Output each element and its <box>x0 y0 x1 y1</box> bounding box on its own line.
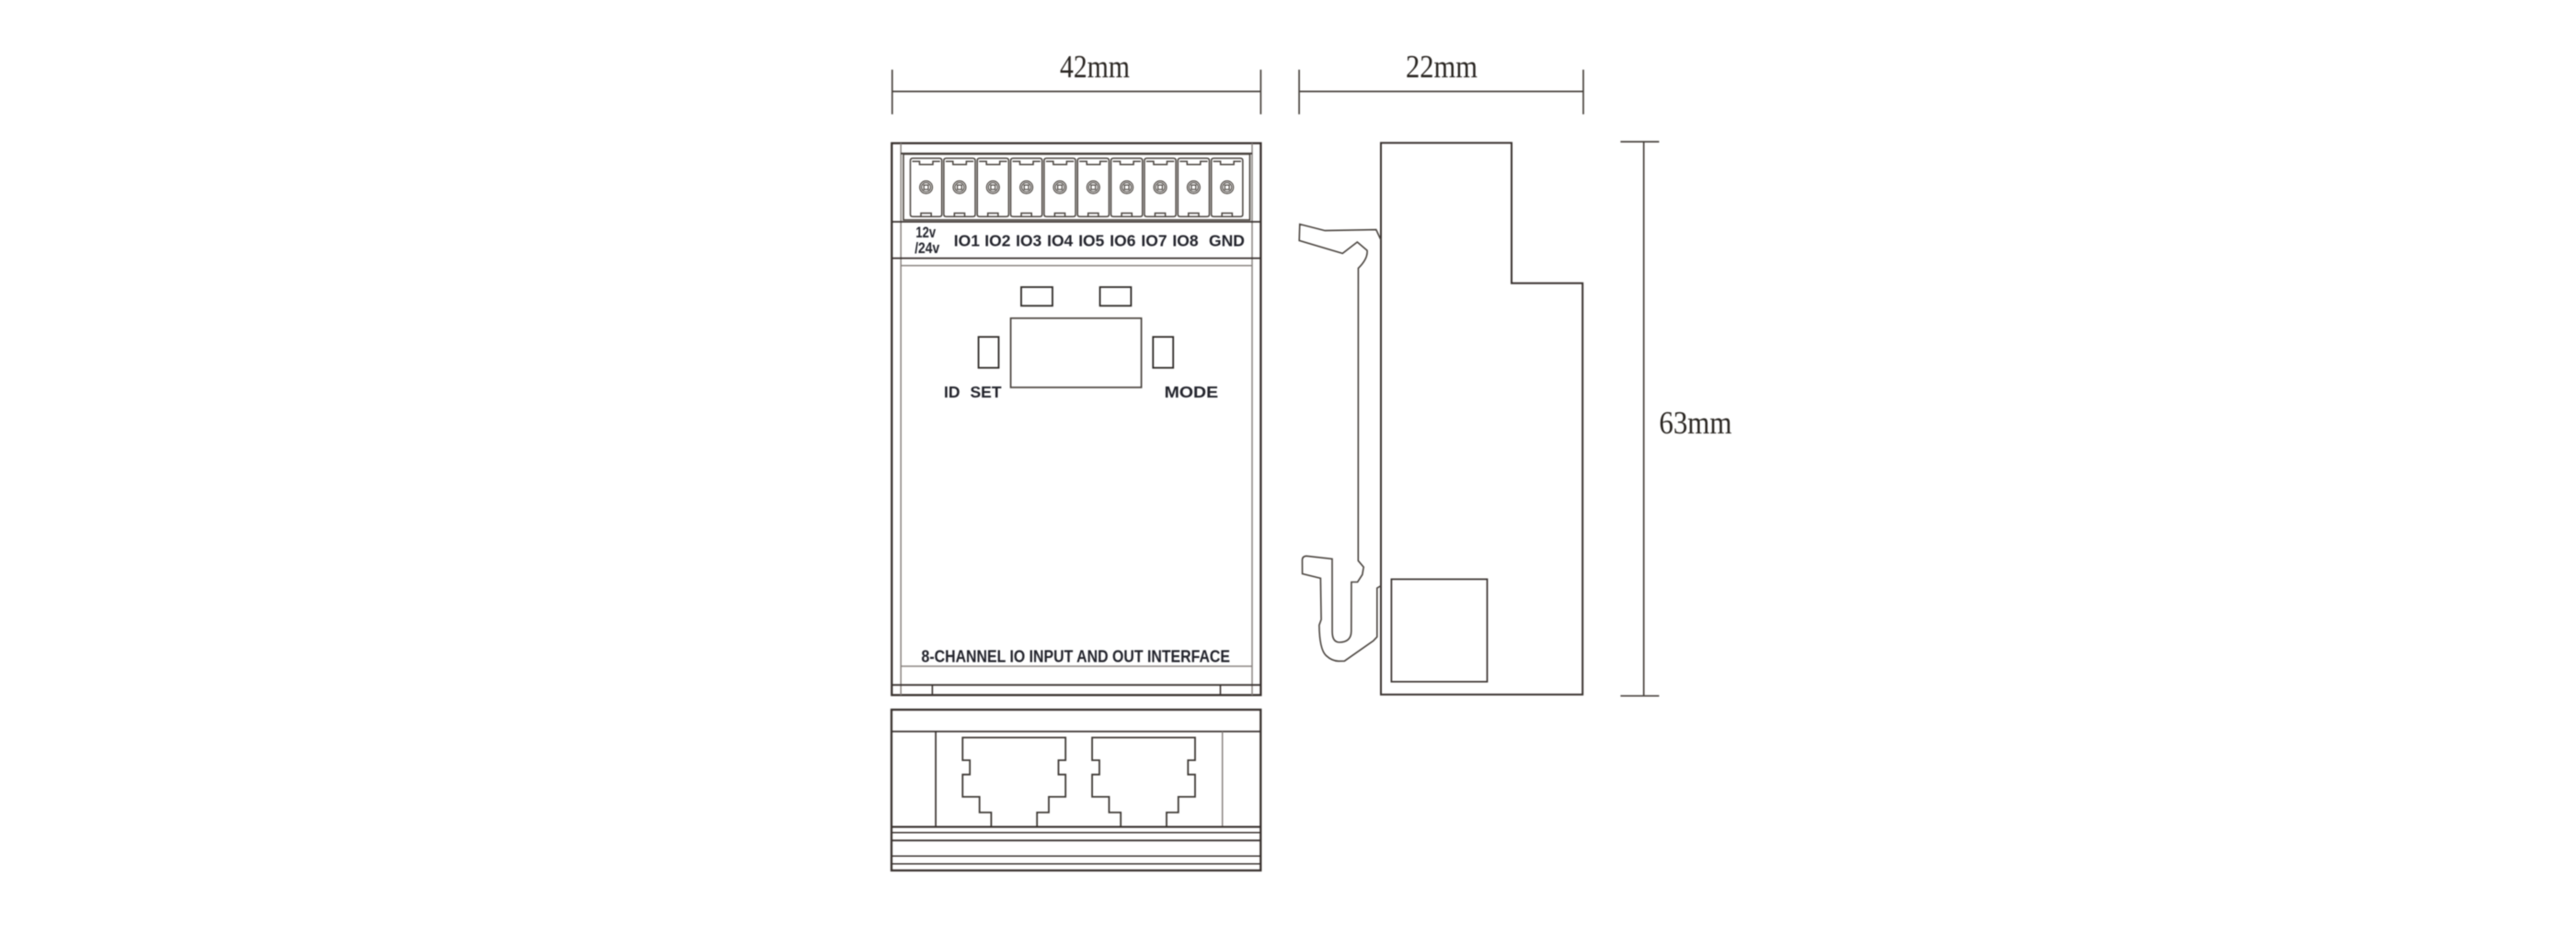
svg-text:IO5: IO5 <box>1078 231 1104 249</box>
svg-text:8-CHANNEL IO INPUT AND OUT INT: 8-CHANNEL IO INPUT AND OUT INTERFACE <box>922 648 1231 666</box>
svg-text:IO7: IO7 <box>1141 231 1167 249</box>
svg-text:GND: GND <box>1209 231 1245 249</box>
svg-text:IO2: IO2 <box>984 231 1010 249</box>
svg-text:IO1: IO1 <box>954 231 980 249</box>
svg-text:12v: 12v <box>915 225 936 241</box>
svg-text:ID: ID <box>944 383 960 401</box>
svg-text:MODE: MODE <box>1165 383 1219 401</box>
svg-text:IO4: IO4 <box>1047 231 1073 249</box>
svg-text:63mm: 63mm <box>1659 405 1731 441</box>
svg-text:IO6: IO6 <box>1110 231 1135 249</box>
svg-text:SET: SET <box>971 383 1002 401</box>
svg-text:IO8: IO8 <box>1172 231 1198 249</box>
svg-text:22mm: 22mm <box>1406 49 1478 85</box>
svg-text:/24v: /24v <box>914 240 940 257</box>
svg-text:42mm: 42mm <box>1060 49 1130 85</box>
svg-text:IO3: IO3 <box>1016 231 1041 249</box>
